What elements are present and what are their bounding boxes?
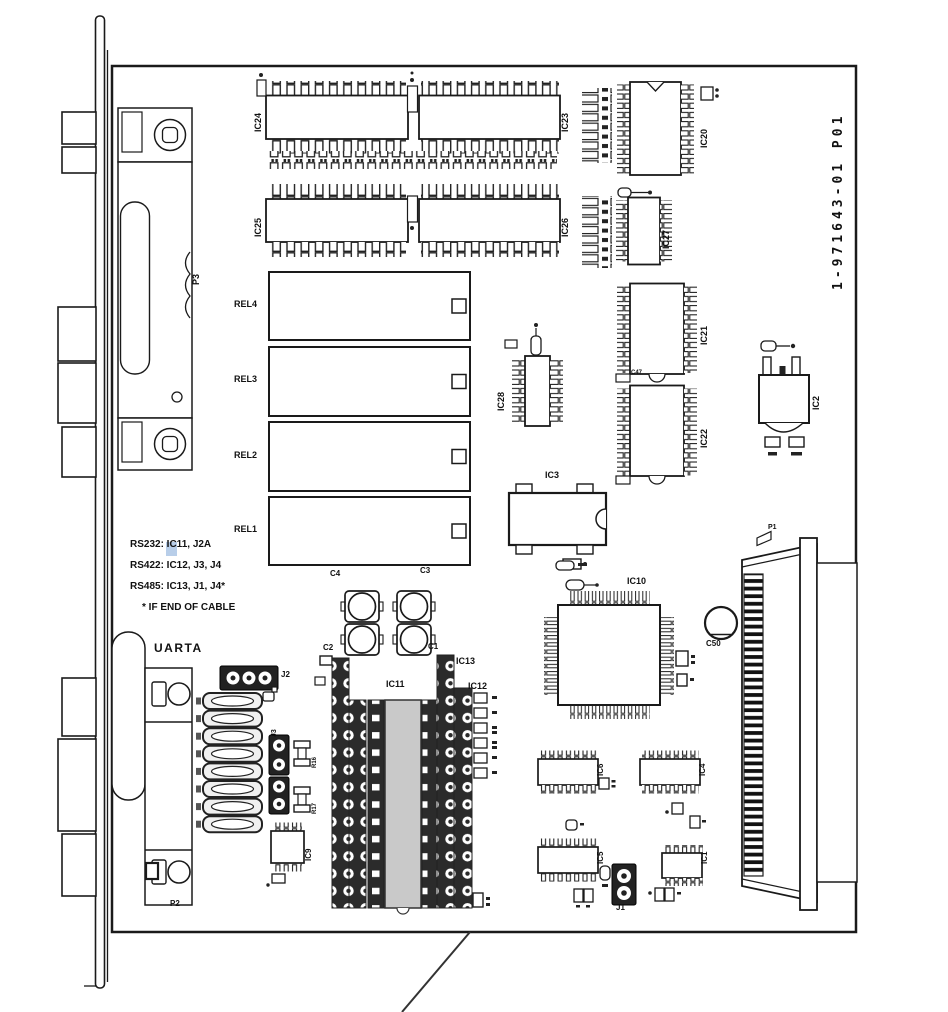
note-rs485: RS485: IC13, J1, J4* — [130, 582, 225, 592]
label-c50: C50 — [706, 640, 721, 648]
p1-edge-connector — [742, 532, 857, 911]
label-ic9: IC9 — [305, 849, 313, 861]
label-ic10: IC10 — [627, 577, 646, 586]
label-ic25: IC25 — [254, 218, 263, 237]
relay-rel4 — [269, 272, 470, 340]
label-c4: C4 — [330, 570, 340, 578]
label-ic5: IC5 — [597, 852, 605, 864]
label-ic4: IC4 — [699, 764, 707, 776]
label-j1: J1 — [616, 904, 625, 912]
resistor-row — [267, 151, 557, 169]
label-ic3: IC3 — [545, 471, 559, 480]
label-ic20: IC20 — [700, 129, 709, 148]
ic21-dip — [616, 284, 697, 383]
label-ic24: IC24 — [254, 113, 263, 132]
note-rs232: RS232: IC11, J2A — [130, 540, 211, 550]
board-artwork — [0, 0, 948, 1012]
relay-rel1 — [269, 497, 470, 565]
p3-connector — [118, 108, 192, 470]
label-rel4: REL4 — [234, 300, 257, 309]
label-c47: C47 — [631, 370, 642, 376]
label-p1: P1 — [768, 524, 777, 531]
label-rel1: REL1 — [234, 525, 257, 534]
label-r16: R16 — [312, 757, 318, 768]
label-ic2: IC2 — [812, 396, 821, 410]
ic13-socket — [437, 655, 454, 908]
relay-rel2 — [269, 422, 470, 491]
label-ic21: IC21 — [700, 326, 709, 345]
label-p2: P2 — [170, 900, 180, 908]
resistor-network-mid — [582, 196, 612, 268]
relay-rel3 — [269, 347, 470, 416]
label-ic23: IC23 — [561, 113, 570, 132]
label-ic13: IC13 — [456, 657, 475, 666]
label-c3: C3 — [420, 567, 430, 575]
label-ic22: IC22 — [700, 429, 709, 448]
leader-line — [402, 932, 470, 1012]
ic11-body — [385, 700, 421, 908]
label-ic27: IC27 — [662, 230, 671, 249]
label-rel3: REL3 — [234, 375, 257, 384]
label-uarta: UARTA — [154, 642, 203, 654]
board-id-label: 1-971643-01 P01 — [832, 113, 845, 290]
label-ic6: IC6 — [597, 764, 605, 776]
note-footnote: * IF END OF CABLE — [142, 603, 235, 613]
label-j2: J2 — [281, 671, 290, 679]
label-ic1: IC1 — [701, 852, 709, 864]
faceplate-bracket — [58, 16, 108, 988]
label-c1: C1 — [428, 643, 438, 651]
label-ic11: IC11 — [386, 680, 405, 689]
resistor-network-top — [582, 88, 612, 163]
label-r17: R17 — [312, 803, 318, 814]
label-ic28: IC28 — [497, 392, 506, 411]
j1-jumper — [612, 864, 636, 905]
label-c2: C2 — [323, 644, 333, 652]
label-rel2: REL2 — [234, 451, 257, 460]
j3-jumper — [269, 735, 289, 814]
label-ic12: IC12 — [468, 682, 487, 691]
pcb-assembly-diagram: RS232: IC11, J2A RS422: IC12, J3, J4 RS4… — [0, 0, 948, 1012]
label-ic26: IC26 — [561, 218, 570, 237]
note-rs422: RS422: IC12, J3, J4 — [130, 561, 221, 571]
ic22-dip — [616, 386, 697, 485]
label-j3: J3 — [271, 729, 278, 737]
label-p3: P3 — [192, 274, 201, 285]
